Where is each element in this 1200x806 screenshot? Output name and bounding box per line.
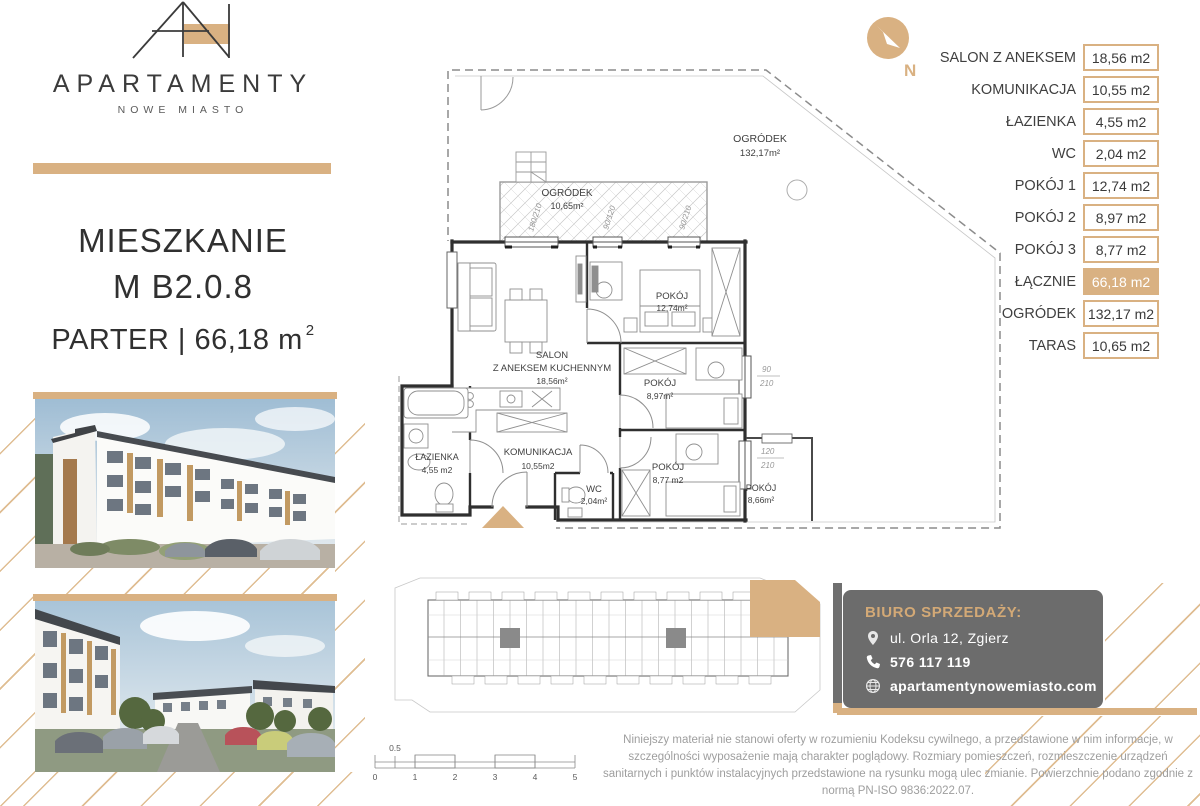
listing-floor-area: PARTER | 66,18 m2 [30,310,336,361]
salon-area: 18,56m² [536,376,567,386]
row-label: WC [925,146,1083,162]
table-row-total: ŁĄCZNIE66,18 m2 [925,268,1160,295]
garden-label: OGRÓDEK [733,132,787,145]
wc-area: 2,04m² [581,496,608,506]
dim-right1-w: 90 [762,365,771,374]
garden-gate [481,76,513,110]
photo-courtyard [35,601,335,772]
area-table: SALON Z ANEKSEM18,56 m2 KOMUNIKACJA10,55… [925,44,1160,364]
floor-plan: OGRÓDEK 132,17m² OGRÓDEK 10,65m² [390,55,1010,560]
row-value: 8,77 m2 [1083,236,1159,263]
salon-label-1: SALON [536,350,568,361]
bathroom-area: 4,55 m2 [422,465,453,475]
row-label: POKÓJ 3 [925,242,1083,258]
bottom-right-accent-bar [837,708,1197,715]
dim-right1-h: 210 [759,379,774,388]
floor-area-text: PARTER | 66,18 m [51,324,302,356]
right-dimension-labels: 90 210 120 210 [757,365,784,470]
table-row: KOMUNIKACJA10,55 m2 [925,76,1160,103]
brochure-page: APARTAMENTY NOWE MIASTO MIESZKANIE M B2.… [0,0,1200,806]
photo2-accent-bar [33,594,337,601]
table-row: WC2,04 m2 [925,140,1160,167]
gray-edge-bar [833,583,842,705]
scale-tick-3: 3 [493,772,498,782]
row-value: 2,04 m2 [1083,140,1159,167]
photo-building-exterior [35,399,335,568]
building-overview-plan [385,565,847,720]
row-label: TARAS [925,338,1083,354]
row-value: 18,56 m2 [1083,44,1159,71]
sales-phone-row[interactable]: 576 117 119 [865,654,1103,670]
dim-right2-w: 120 [761,447,775,456]
terrace: OGRÓDEK 10,65m² [500,182,707,242]
bedroom1-area: 12,74m² [656,303,687,313]
neighbor-room-label: POKÓJ [746,483,777,493]
row-label: POKÓJ 2 [925,210,1083,226]
sales-office-title: BIURO SPRZEDAŻY: [865,604,1103,621]
sales-address-row: ul. Orla 12, Zgierz [865,630,1103,646]
terrace-area: 10,65m² [550,201,583,211]
neighbor-room-area: 8,66m² [748,495,775,505]
row-value: 10,65 m2 [1083,332,1159,359]
row-label: ŁAZIENKA [925,114,1083,130]
hatch-right-of-photos [335,396,365,776]
brand-monogram-logo [130,0,234,62]
neighbor-room: POKÓJ 8,66m² [746,434,812,521]
bedroom3-area: 8,77 m2 [653,475,684,485]
windows-top [505,237,700,247]
hatch-right-of-salesbox [1105,583,1200,708]
stair-core-1 [500,628,520,648]
scale-tick-0: 0 [373,772,378,782]
brand-subtitle: NOWE MIASTO [33,104,333,116]
listing-title-block: MIESZKANIE M B2.0.8 PARTER | 66,18 m2 [30,218,336,361]
photo1-illustration [35,399,335,568]
phone-icon [865,654,881,670]
row-value: 8,97 m2 [1083,204,1159,231]
scale-tick-2: 2 [453,772,458,782]
sales-address: ul. Orla 12, Zgierz [890,630,1009,646]
row-value: 12,74 m2 [1083,172,1159,199]
salon-label-2: Z ANEKSEM KUCHENNYM [493,363,611,374]
hallway-area: 10,55m2 [521,461,554,471]
table-row: POKÓJ 28,97 m2 [925,204,1160,231]
scale-tick-1: 1 [413,772,418,782]
scale-tick-5: 5 [573,772,578,782]
table-row: OGRÓDEK132,17 m2 [925,300,1160,327]
globe-icon [865,678,881,694]
row-value: 10,55 m2 [1083,76,1159,103]
dim-right2-h: 210 [760,461,775,470]
terrace-stairs [516,152,546,182]
bedroom1-label: POKÓJ [656,291,688,302]
wc-label: WC [586,484,602,495]
scale-tick-4: 4 [533,772,538,782]
row-value: 132,17 m2 [1083,300,1159,327]
garden-tree-symbol [787,180,807,200]
hatch-left-strip [0,396,35,806]
building-outline [428,600,788,676]
garden-area: 132,17m² [740,148,780,159]
photo1-accent-bar [33,392,337,399]
hatch-below-photos [0,772,365,806]
table-row: POKÓJ 38,77 m2 [925,236,1160,263]
sales-office-box: BIURO SPRZEDAŻY: ul. Orla 12, Zgierz 576… [843,590,1103,708]
accent-divider-bar [33,163,331,174]
bedroom3-label: POKÓJ [652,462,684,473]
kitchen-furniture [452,388,567,432]
row-label: OGRÓDEK [925,306,1083,322]
stair-core-2 [666,628,686,648]
legal-disclaimer: Niniejszy materiał nie stanowi oferty w … [598,732,1198,800]
row-value: 4,55 m2 [1083,108,1159,135]
unit-highlight [750,580,820,637]
bathroom-label: ŁAZIENKA [415,452,459,462]
row-label: SALON Z ANEKSEM [925,50,1083,66]
area-superscript: 2 [306,322,315,339]
listing-unit-number: M B2.0.8 [30,264,336,310]
scale-bar: 0.5 0 1 2 3 4 5 [365,738,585,790]
scale-half-label: 0.5 [389,743,401,753]
table-row: SALON Z ANEKSEM18,56 m2 [925,44,1160,71]
listing-type: MIESZKANIE [30,218,336,264]
row-label: KOMUNIKACJA [925,82,1083,98]
unit-dividers [444,600,774,676]
row-label: ŁĄCZNIE [925,274,1083,290]
row-value-total: 66,18 m2 [1083,268,1159,295]
sales-phone[interactable]: 576 117 119 [890,654,971,670]
location-pin-icon [865,630,881,646]
hallway-label: KOMUNIKACJA [504,447,573,458]
terrace-label: OGRÓDEK [541,186,592,199]
sales-website[interactable]: apartamentynowemiasto.com [890,678,1097,694]
bedroom2-label: POKÓJ [644,378,676,389]
table-row: TARAS10,65 m2 [925,332,1160,359]
row-label: POKÓJ 1 [925,178,1083,194]
sales-website-row[interactable]: apartamentynowemiasto.com [865,678,1103,694]
table-row: ŁAZIENKA4,55 m2 [925,108,1160,135]
photo2-illustration [35,601,335,772]
monogram-accent-rect [184,24,230,44]
window-left [447,252,457,308]
bedroom2-area: 8,97m² [647,391,674,401]
brand-name: APARTAMENTY [33,70,333,99]
table-row: POKÓJ 112,74 m2 [925,172,1160,199]
